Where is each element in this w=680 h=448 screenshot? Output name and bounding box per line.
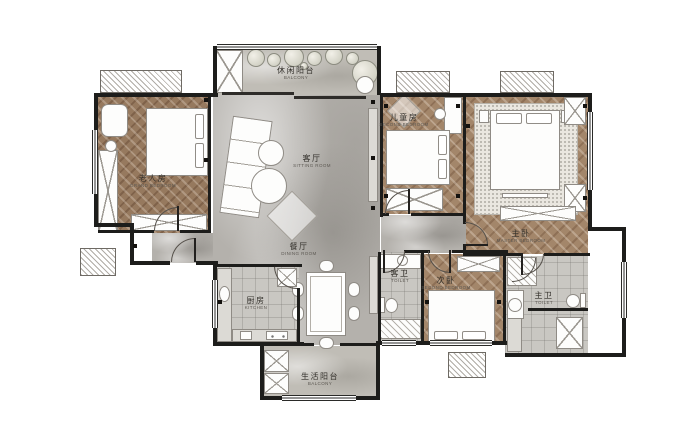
bay-window-master <box>500 71 554 93</box>
kids-pillow <box>438 159 447 179</box>
guest-toilet-bowl <box>385 298 398 313</box>
master-wardrobe <box>564 97 586 125</box>
wall <box>376 345 380 400</box>
window <box>212 280 218 328</box>
room-label-guest-toilet-en: TOILET <box>391 278 410 283</box>
door-leaf <box>449 250 451 273</box>
wall <box>528 308 588 311</box>
wall <box>378 252 381 342</box>
bay-window-kids <box>396 71 450 93</box>
room-label-kids-bedroom-zh: 儿童房 <box>379 113 428 122</box>
room-label-sitting-room-en: SITTING ROOM <box>293 163 331 168</box>
room-label-guest-toilet: 客卫 TOILET <box>391 269 410 283</box>
wall-mark <box>371 100 375 104</box>
wall-mark <box>204 98 208 102</box>
second-pillow <box>434 331 458 340</box>
dining-chair <box>319 260 334 272</box>
room-label-grand-bedroom-en: GRAND BEDROOM <box>130 183 176 188</box>
wall-mark <box>384 194 388 198</box>
coffee-table <box>251 168 287 204</box>
wall <box>411 213 464 216</box>
utility-counter <box>507 318 522 352</box>
wall <box>466 253 522 256</box>
sliding-door <box>222 92 294 95</box>
room-label-sitting-room: 客厅 SITTING ROOM <box>293 154 331 168</box>
room-label-dining-room-en: DINING ROOM <box>281 251 316 256</box>
balcony-cabinet <box>216 50 243 93</box>
grand-armchair <box>101 104 128 137</box>
room-label-leisure-balcony-en: BALCONY <box>277 75 315 80</box>
ac-platform-left <box>80 248 116 276</box>
wall <box>505 353 626 357</box>
room-label-guest-toilet-zh: 客卫 <box>391 269 410 278</box>
room-label-sitting-room-zh: 客厅 <box>293 154 331 163</box>
second-pillow <box>462 331 486 340</box>
wall-mark <box>425 300 429 304</box>
grand-pillow <box>195 114 204 139</box>
door-leaf <box>521 253 523 275</box>
kids-pillow <box>438 135 447 155</box>
room-label-leisure-balcony-zh: 休闲阳台 <box>277 66 315 75</box>
wall <box>588 227 626 231</box>
dining-chair <box>348 306 360 321</box>
dining-chair <box>319 337 334 349</box>
wall-mark <box>133 244 137 248</box>
grand-side-table <box>105 140 117 152</box>
kitchen-counter-left <box>217 268 232 342</box>
room-label-grand-bedroom: 老人房 GRAND BEDROOM <box>130 174 176 188</box>
master-pillow <box>496 113 522 124</box>
wall-mark <box>371 206 375 210</box>
room-label-kitchen: 厨房 KITCHEN <box>245 296 268 310</box>
room-label-master-toilet-zh: 主卫 <box>535 291 554 300</box>
master-dresser <box>500 206 576 221</box>
kitchen-sink-2 <box>240 331 252 340</box>
door-leaf <box>274 265 297 267</box>
wall-mark <box>218 300 222 304</box>
room-label-second-bedroom: 次卧 SECOND BEDROOM <box>421 276 470 290</box>
room-label-master-toilet: 主卫 TOILET <box>535 291 554 305</box>
grand-wardrobe <box>98 150 118 232</box>
kids-desk <box>444 97 462 134</box>
wall <box>463 95 466 216</box>
door-leaf <box>408 189 410 214</box>
floor-plan-canvas: 老人房 GRAND BEDROOM 休闲阳台 BALCONY 客厅 SITTIN… <box>0 0 680 448</box>
room-label-master-bedroom: 主卧 MASTER BEDROOM <box>497 229 546 243</box>
window <box>430 340 492 346</box>
master-toilet-tank <box>580 293 586 308</box>
wall-mark <box>466 124 470 128</box>
dining-chair <box>348 282 360 297</box>
room-label-second-bedroom-en: SECOND BEDROOM <box>421 285 470 290</box>
plant-icon <box>247 49 265 67</box>
sideboard <box>369 256 378 314</box>
corridor-right-floor <box>381 215 467 253</box>
dining-table <box>306 272 346 336</box>
wall-mark <box>583 196 587 200</box>
window <box>282 395 356 401</box>
wall <box>208 95 211 233</box>
second-cabinet <box>457 256 500 272</box>
wall <box>98 230 154 233</box>
room-label-master-bedroom-zh: 主卧 <box>497 229 546 238</box>
wall <box>340 343 378 346</box>
ac-platform-bottom <box>448 352 486 378</box>
wall-mark <box>371 156 375 160</box>
master-pillow <box>526 113 552 124</box>
room-label-grand-bedroom-zh: 老人房 <box>130 174 176 183</box>
room-label-life-balcony-zh: 生活阳台 <box>301 372 339 381</box>
window <box>587 112 593 190</box>
laundry-cabinet <box>264 350 289 372</box>
window <box>92 130 98 194</box>
sliding-door <box>294 96 366 99</box>
window <box>621 262 627 318</box>
wall-mark <box>497 300 501 304</box>
door-leaf <box>383 250 385 273</box>
wall-mark <box>583 104 587 108</box>
wall-mark <box>456 104 460 108</box>
wall <box>213 342 304 346</box>
wall <box>544 253 590 256</box>
wall-mark <box>204 158 208 162</box>
door-leaf <box>464 244 488 246</box>
room-label-master-toilet-en: TOILET <box>535 300 554 305</box>
shower <box>380 319 421 339</box>
wall <box>213 46 217 95</box>
laundry-cabinet <box>264 373 289 394</box>
grand-pillow <box>195 143 204 168</box>
room-label-leisure-balcony: 休闲阳台 BALCONY <box>277 66 315 80</box>
room-label-kitchen-en: KITCHEN <box>245 305 268 310</box>
wall <box>180 230 210 233</box>
wall <box>297 288 300 344</box>
wall <box>421 252 424 344</box>
coffee-table <box>258 140 284 166</box>
room-label-kids-bedroom: 儿童房 SECOND BEDROOM <box>379 113 428 127</box>
tv-console <box>368 108 378 202</box>
door-leaf <box>177 206 179 231</box>
wall-mark <box>456 194 460 198</box>
window <box>217 44 377 50</box>
bay-window-grand <box>100 70 182 93</box>
wall <box>404 250 430 253</box>
wall <box>380 93 592 97</box>
washer <box>556 317 583 349</box>
kids-chair <box>434 108 446 120</box>
room-label-life-balcony: 生活阳台 BALCONY <box>301 372 339 386</box>
wall <box>377 46 381 95</box>
room-label-second-bedroom-zh: 次卧 <box>421 276 470 285</box>
room-label-master-bedroom-en: MASTER BEDROOM <box>497 238 546 243</box>
room-label-dining-room: 餐厅 DINING ROOM <box>281 242 316 256</box>
wall <box>94 223 134 227</box>
wall <box>96 93 218 97</box>
wall <box>503 252 506 344</box>
stove <box>266 331 288 340</box>
wall <box>130 261 170 265</box>
room-label-dining-room-zh: 餐厅 <box>281 242 316 251</box>
nightstand <box>479 110 489 123</box>
room-label-life-balcony-en: BALCONY <box>301 381 339 386</box>
room-label-kids-bedroom-en: SECOND BEDROOM <box>379 122 428 127</box>
plant-icon <box>307 51 322 66</box>
window <box>382 340 416 346</box>
entry-door-leaf <box>194 238 196 262</box>
hanging-chair <box>356 76 374 94</box>
wall <box>260 345 264 400</box>
bed-bench <box>502 193 548 198</box>
room-label-kitchen-zh: 厨房 <box>245 296 268 305</box>
master-sink <box>508 298 522 312</box>
wall-mark <box>384 104 388 108</box>
master-toilet-bowl <box>566 294 580 308</box>
